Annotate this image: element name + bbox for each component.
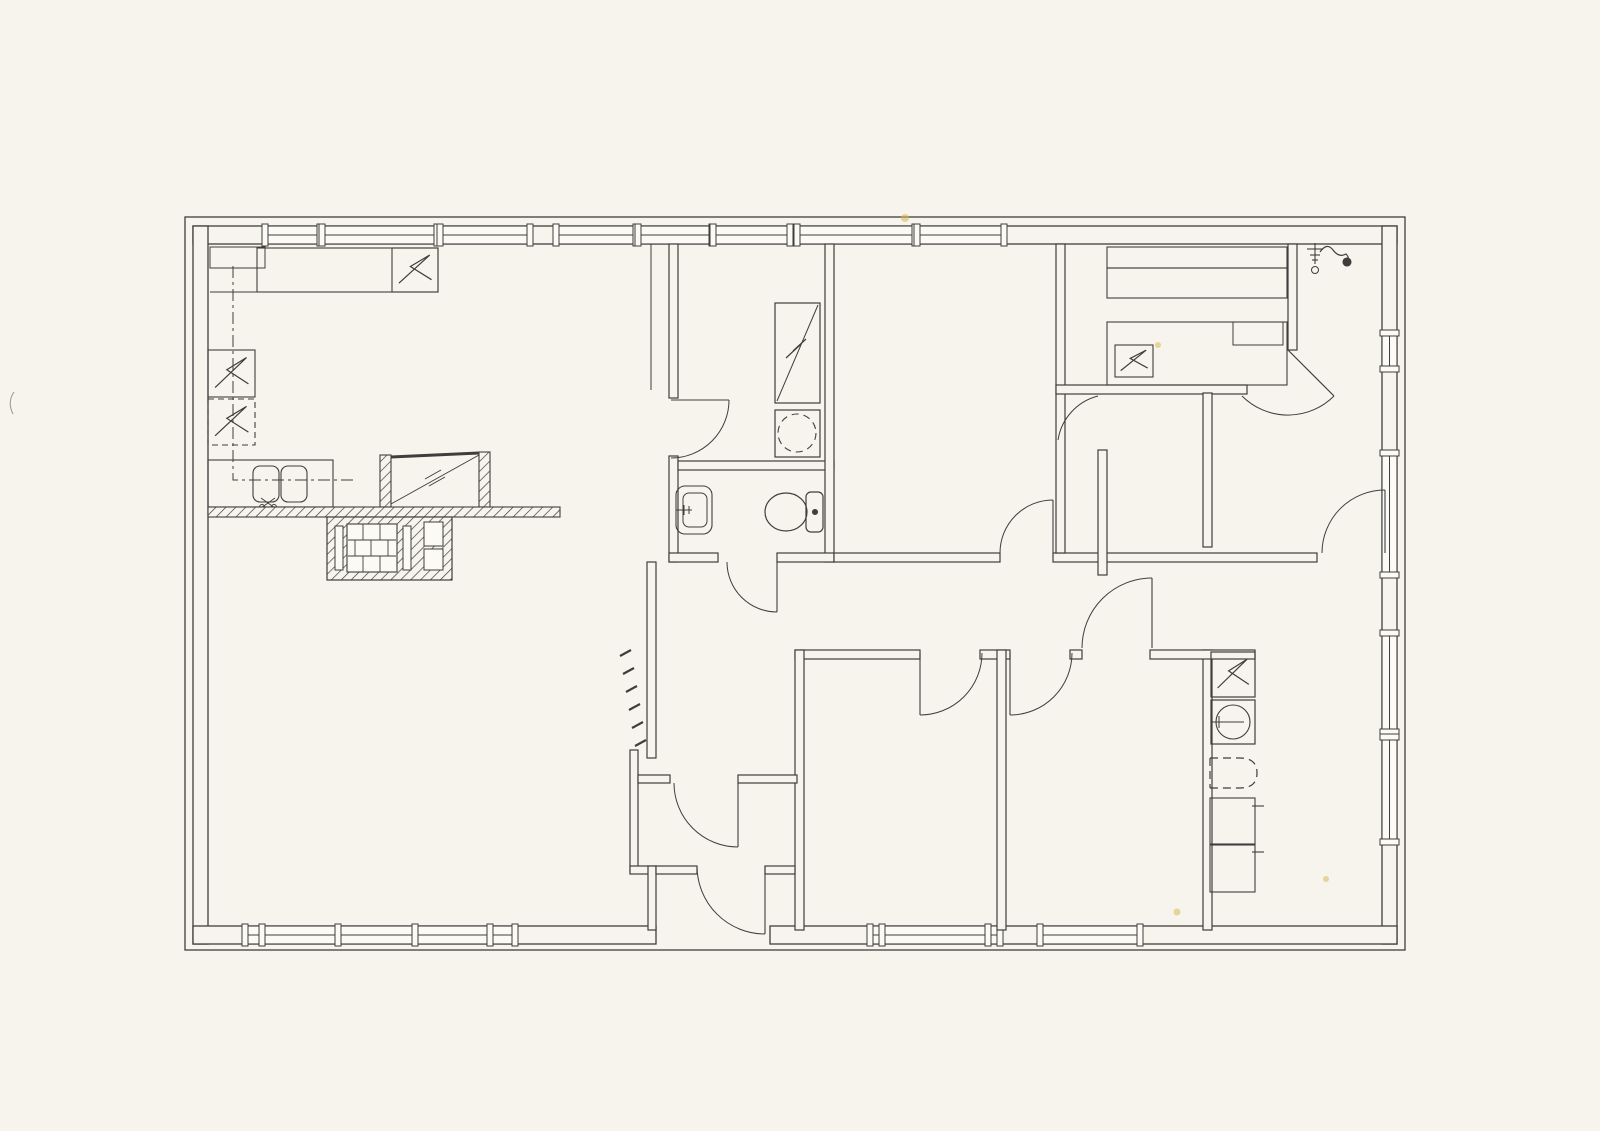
window-top-8-mullion-0 bbox=[914, 224, 920, 246]
wall-porch-west bbox=[630, 750, 638, 872]
window-top-5-mullion-0 bbox=[635, 224, 641, 246]
window-bedroom1-south-mullion-0 bbox=[867, 924, 873, 946]
wall-bedrooms-divider bbox=[997, 650, 1006, 930]
rightroom-door-arc bbox=[1322, 490, 1385, 553]
floor-plan-page bbox=[0, 0, 1600, 1131]
paper-speck-1 bbox=[901, 214, 909, 222]
wall-exterior-left bbox=[193, 226, 208, 944]
closet-door-arc bbox=[1242, 396, 1334, 415]
window-right-2-mullion-0 bbox=[1380, 450, 1399, 456]
kitchen-bar-halfwall bbox=[208, 507, 560, 517]
washing-machine-drum bbox=[778, 414, 816, 452]
window-top-3-mullion-0 bbox=[437, 224, 443, 246]
wall-closet-east bbox=[1288, 244, 1297, 350]
closet-shelf-lower bbox=[1107, 268, 1287, 298]
paper-speck-4 bbox=[1323, 876, 1329, 882]
wall-bath-south-east bbox=[777, 553, 834, 562]
section-dash-6 bbox=[635, 740, 646, 746]
fireplace-firebox bbox=[347, 524, 397, 572]
wall-sauna-north bbox=[1150, 650, 1255, 659]
meter-dot bbox=[1343, 258, 1351, 266]
sauna-bench-upper bbox=[1210, 798, 1255, 844]
wall-closet-south bbox=[1056, 385, 1247, 394]
window-top-3-mullion-1 bbox=[527, 224, 533, 246]
bathtub-outline bbox=[1210, 758, 1257, 788]
fireplace-slot-west bbox=[335, 526, 343, 570]
glass-partition-diagonal bbox=[391, 455, 479, 504]
wall-utility-west-upper bbox=[669, 244, 678, 398]
glass-partition-top bbox=[391, 453, 479, 457]
wall-porch-west-lower bbox=[648, 866, 656, 930]
wall-corridor-west bbox=[647, 562, 656, 758]
floor-plan-drawing bbox=[0, 0, 1600, 1131]
sauna-bench-lower bbox=[1210, 845, 1255, 892]
window-top-6-mullion-0 bbox=[710, 224, 716, 246]
kitchen-counter bbox=[208, 460, 333, 507]
entry-door-arc bbox=[697, 866, 765, 934]
window-bedroom1-south-mullion-3 bbox=[985, 924, 991, 946]
kitchen-sink-right bbox=[281, 466, 307, 502]
window-right-1-mullion-0 bbox=[1380, 330, 1399, 336]
window-livingroom-south-mullion-3 bbox=[335, 924, 341, 946]
window-bedroom2-south-mullion-0 bbox=[1037, 924, 1043, 946]
wall-bedroom1-west bbox=[795, 650, 804, 930]
wall-porch-south-a bbox=[656, 866, 697, 874]
utility-door-arc bbox=[671, 400, 729, 458]
section-dash-2 bbox=[623, 668, 634, 674]
section-dash-1 bbox=[620, 650, 631, 656]
fireplace-slot-east bbox=[403, 526, 411, 570]
window-right-1-mullion-1 bbox=[1380, 366, 1399, 372]
sauna-heater-symbol bbox=[1218, 659, 1249, 688]
glass-partition-post-east bbox=[479, 452, 490, 507]
wall-midbedroom-east bbox=[1056, 244, 1065, 553]
wall-hall-north-b bbox=[1053, 553, 1317, 562]
kitchen-service-centerline bbox=[233, 266, 355, 480]
hall-east-door-arc bbox=[1082, 578, 1152, 648]
section-dash-5 bbox=[632, 722, 643, 728]
midbedroom-door-arc bbox=[1000, 500, 1053, 553]
window-livingroom-south-mullion-2 bbox=[259, 924, 265, 946]
appliance-upper-symbol bbox=[215, 358, 248, 388]
bath-door-arc bbox=[727, 562, 777, 612]
window-top-4-mullion-0 bbox=[553, 224, 559, 246]
window-livingroom-south-mullion-1 bbox=[512, 924, 518, 946]
bedroom2-door-arc bbox=[1010, 653, 1072, 715]
closet-counter-item bbox=[1233, 322, 1283, 345]
window-top-7-mullion-0 bbox=[794, 224, 800, 246]
window-top-8-mullion-1 bbox=[1001, 224, 1007, 246]
fireplace-vent-upper bbox=[424, 522, 443, 546]
vestibule-door-arc bbox=[674, 783, 738, 847]
meter-circle bbox=[1312, 267, 1319, 274]
wall-utility-west-lower bbox=[669, 456, 678, 562]
appliance-lower-symbol bbox=[215, 406, 248, 435]
wall-bath-north bbox=[678, 461, 834, 470]
fireplace-vent-lower bbox=[424, 549, 443, 570]
wall-porch-south-b bbox=[765, 866, 795, 874]
wall-lobby-east bbox=[1203, 393, 1212, 547]
water-heater-diagonal bbox=[777, 305, 818, 401]
window-bedroom2-south-mullion-1 bbox=[1137, 924, 1143, 946]
scan-edge-mark bbox=[10, 392, 14, 414]
fridge-symbol bbox=[399, 255, 432, 283]
window-right-4-mullion-1 bbox=[1380, 839, 1399, 845]
window-right-2-mullion-1 bbox=[1380, 572, 1399, 578]
kitchen-sink-left bbox=[253, 466, 279, 502]
window-livingroom-south-mullion-4 bbox=[412, 924, 418, 946]
closet-counter bbox=[1107, 322, 1287, 385]
wall-vestibule-north-west bbox=[638, 775, 670, 783]
washing-machine bbox=[775, 410, 820, 457]
toilet-bowl bbox=[765, 493, 807, 531]
paper-speck-3 bbox=[1174, 909, 1181, 916]
section-dash-3 bbox=[626, 686, 637, 692]
closet-door-leaf bbox=[1288, 350, 1334, 396]
wall-bath-south-west bbox=[669, 553, 718, 562]
closet-shelf-upper bbox=[1107, 247, 1287, 268]
window-top-6-mullion-1 bbox=[787, 224, 793, 246]
bedroom1-door-arc bbox=[920, 653, 982, 715]
window-top-1-mullion-0 bbox=[262, 224, 268, 246]
toilet-button bbox=[813, 510, 818, 515]
wall-hall-north-a bbox=[834, 553, 1000, 562]
water-heater-bolt bbox=[786, 339, 806, 358]
window-livingroom-south-mullion-5 bbox=[487, 924, 493, 946]
window-right-3-mullion-0 bbox=[1380, 630, 1399, 636]
window-bedroom1-south-mullion-2 bbox=[879, 924, 885, 946]
closet-appliance-symbol bbox=[1121, 350, 1148, 370]
wall-utility-east bbox=[825, 244, 834, 562]
window-right-4-mullion-0 bbox=[1380, 734, 1399, 740]
section-dash-4 bbox=[629, 704, 640, 710]
kitchen-upper-cabinet bbox=[257, 248, 438, 292]
glass-partition-post-west bbox=[380, 455, 391, 507]
paper-speck-2 bbox=[1155, 342, 1161, 348]
window-livingroom-south-mullion-0 bbox=[242, 924, 248, 946]
wall-vestibule-north-east bbox=[738, 775, 797, 783]
wall-lobby-west bbox=[1098, 450, 1107, 575]
wall-bedrooms-north-a bbox=[795, 650, 920, 659]
window-top-2-mullion-0 bbox=[319, 224, 325, 246]
